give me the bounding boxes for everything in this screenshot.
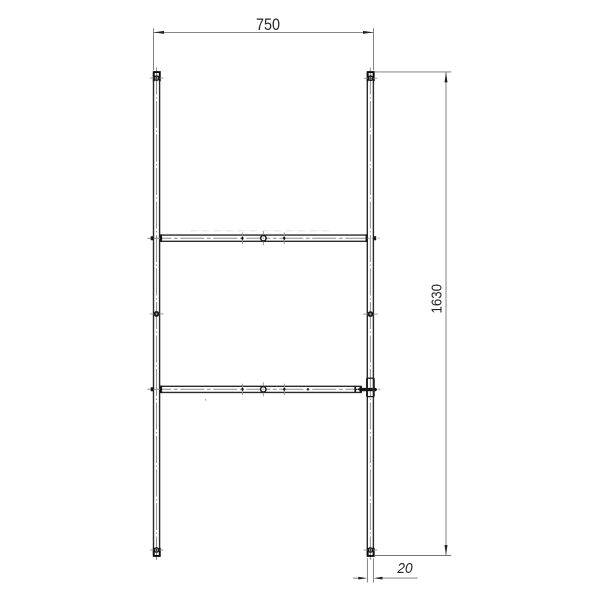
svg-text:1630: 1630 [429, 284, 445, 314]
svg-text:750: 750 [256, 15, 280, 34]
svg-text:20: 20 [396, 561, 413, 577]
